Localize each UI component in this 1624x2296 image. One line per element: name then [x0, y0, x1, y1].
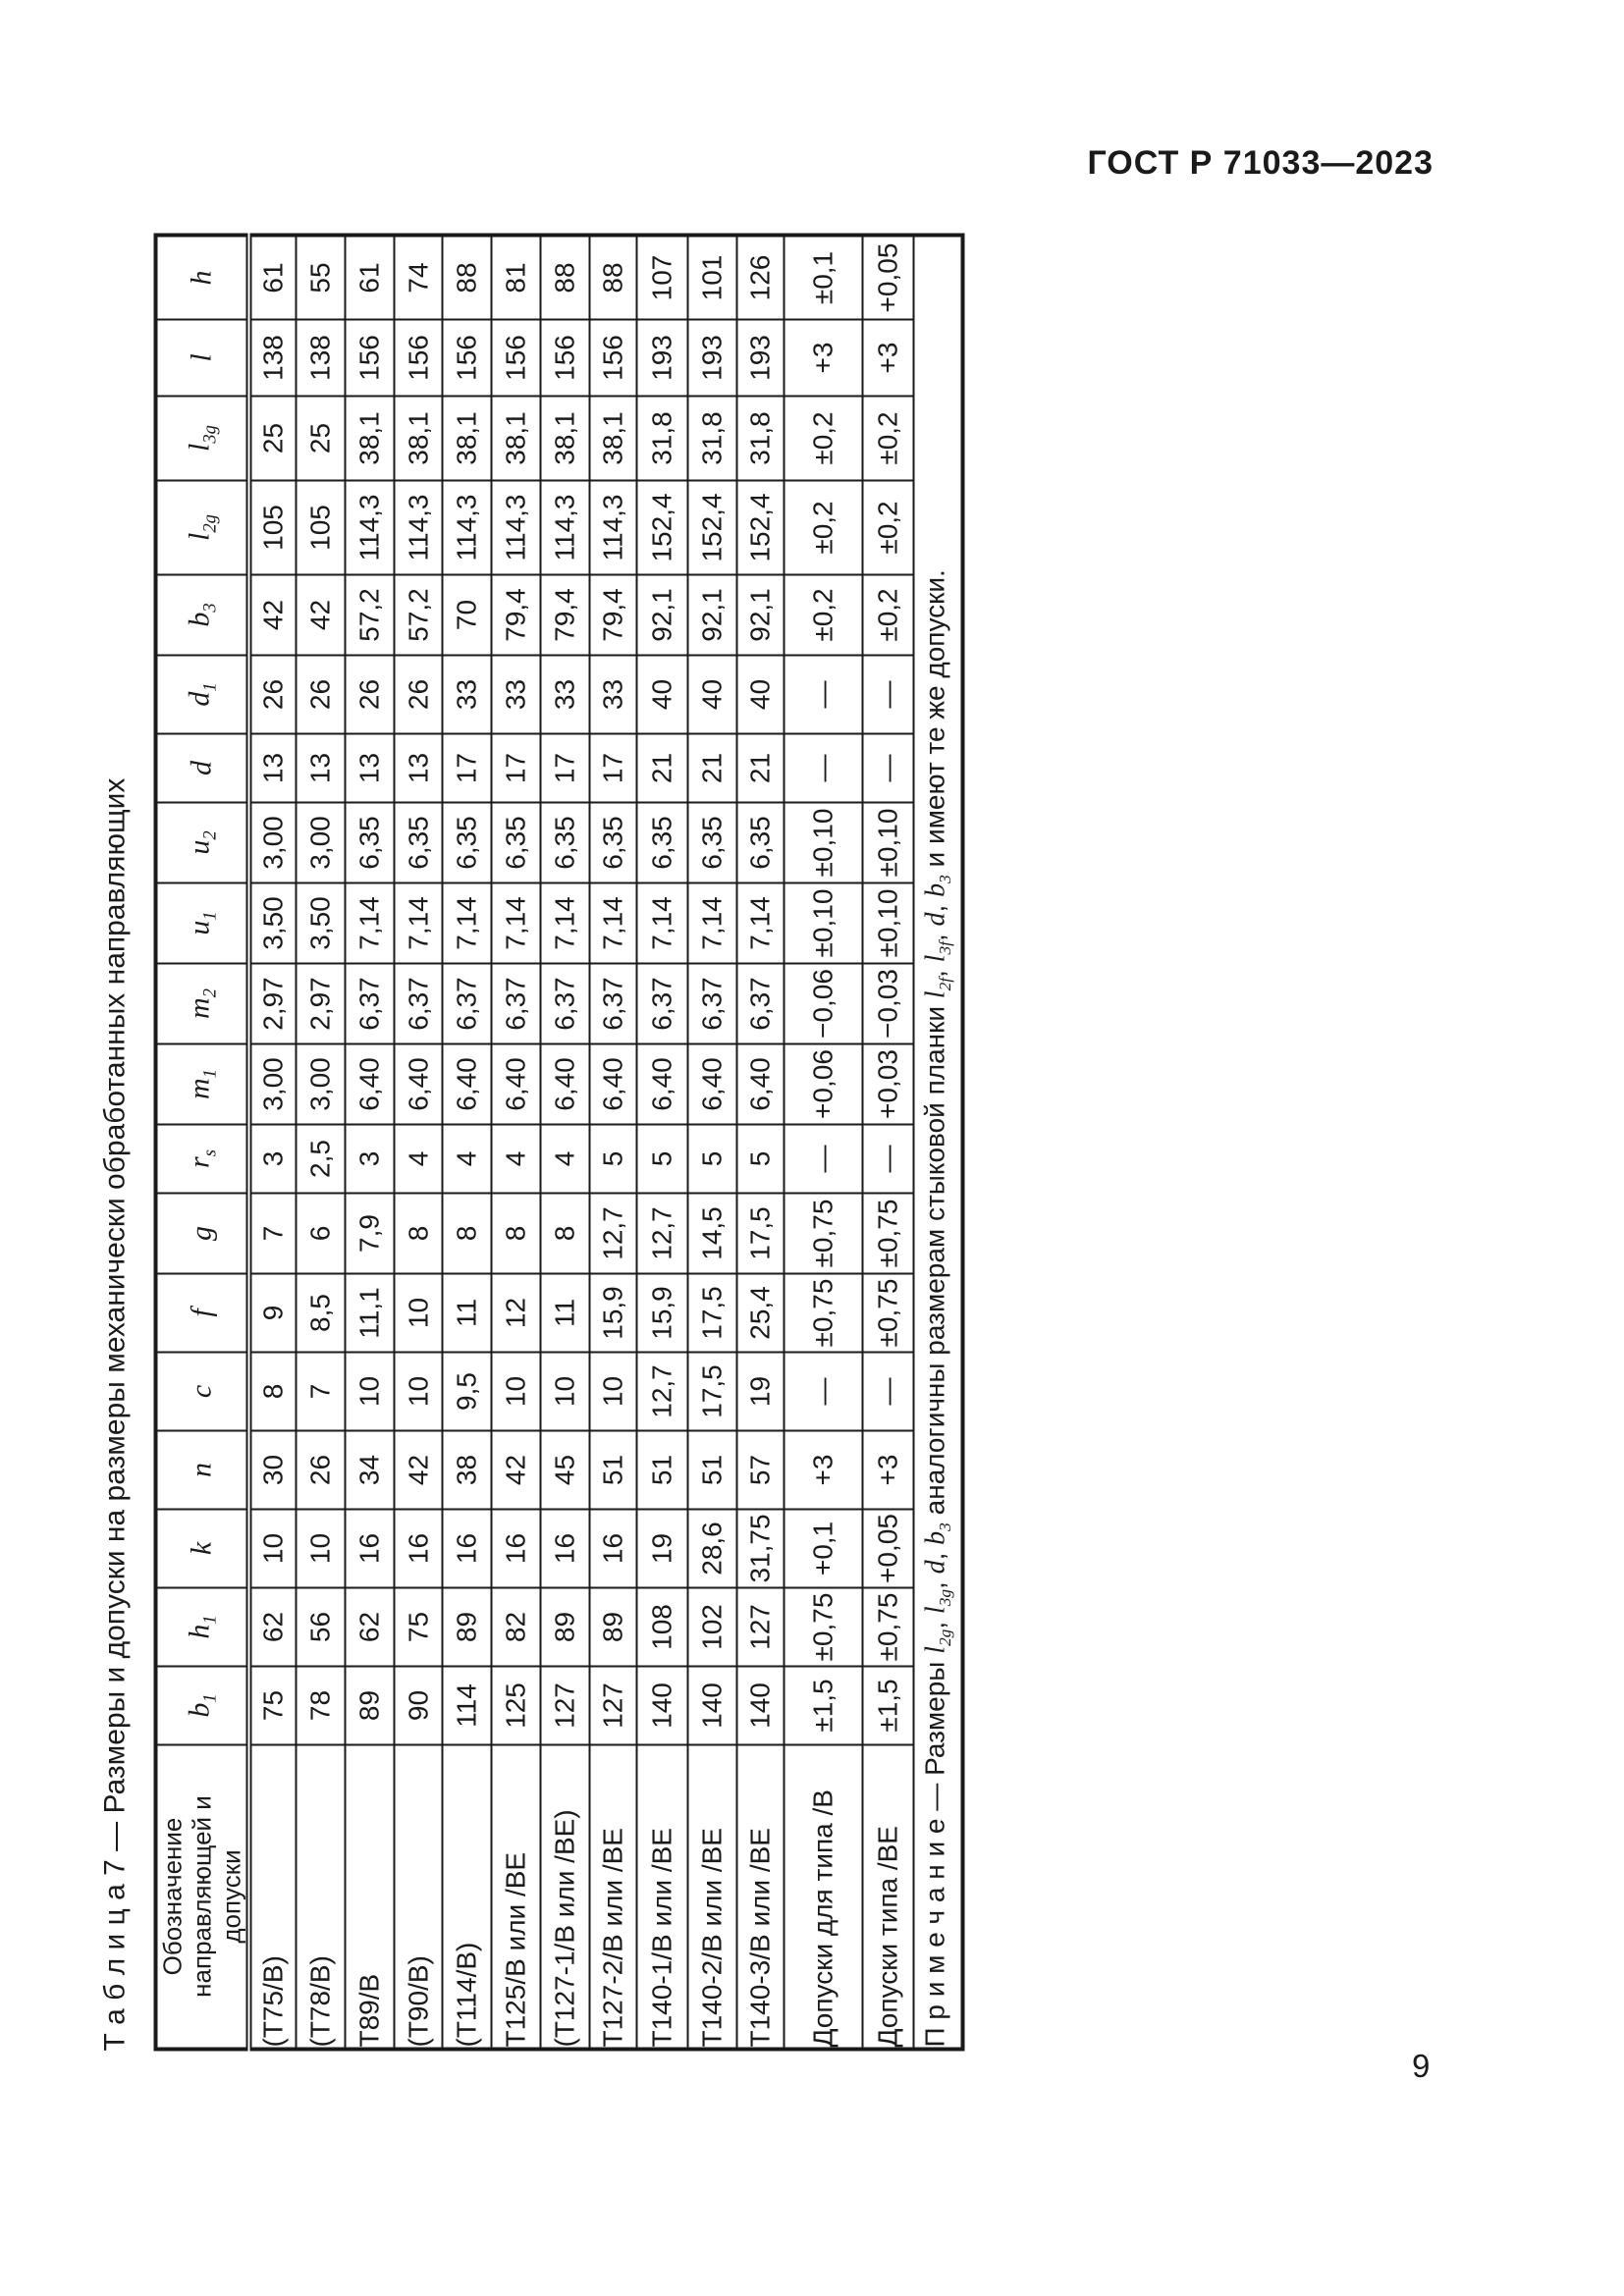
value-cell: 89 [346, 1667, 395, 1745]
value-cell: 16 [395, 1510, 443, 1588]
dimension-header-cell: h [156, 236, 249, 320]
dimension-header-cell: b1 [156, 1667, 249, 1745]
value-cell: 17 [541, 734, 590, 803]
value-cell: 6,35 [395, 803, 443, 883]
value-cell: 92,1 [737, 575, 785, 656]
designation-cell: (Т78/В) [297, 1745, 346, 2050]
value-cell: ±0,75 [785, 1588, 863, 1667]
value-cell: 3,00 [297, 1044, 346, 1125]
value-cell: 10 [590, 1353, 637, 1431]
value-cell: 2,97 [297, 964, 346, 1044]
value-cell: 78 [297, 1667, 346, 1745]
value-cell: 51 [637, 1431, 688, 1510]
value-cell: 57 [737, 1431, 785, 1510]
value-cell: ±0,75 [863, 1194, 914, 1274]
value-cell: ±0,2 [863, 397, 914, 481]
value-cell: +0,05 [863, 1510, 914, 1588]
value-cell: 102 [688, 1588, 737, 1667]
table-row: Т140-2/В или /ВЕ14010228,65117,517,514,5… [688, 236, 737, 2050]
value-cell: 31,8 [688, 397, 737, 481]
value-cell: +3 [863, 320, 914, 397]
value-cell: 79,4 [590, 575, 637, 656]
value-cell: 6,40 [541, 1044, 590, 1125]
value-cell: 82 [492, 1588, 541, 1667]
value-cell: 8 [249, 1353, 297, 1431]
value-cell: 193 [688, 320, 737, 397]
value-cell: 10 [297, 1510, 346, 1588]
value-cell: 38,1 [541, 397, 590, 481]
table-row: Допуски типа /ВЕ±1,5±0,75+0,05+3—±0,75±0… [863, 236, 914, 2050]
value-cell: 31,8 [637, 397, 688, 481]
value-cell: 5 [688, 1125, 737, 1194]
value-cell: 42 [249, 575, 297, 656]
value-cell: 25 [249, 397, 297, 481]
value-cell: 12,7 [637, 1353, 688, 1431]
value-cell: 105 [249, 481, 297, 575]
value-cell: 12,7 [590, 1194, 637, 1274]
value-cell: 6,37 [688, 964, 737, 1044]
value-cell: 7,14 [492, 883, 541, 964]
table-row: (Т75/В)7562103089733,002,973,503,0013264… [249, 236, 297, 2050]
designation-header-cell: Обозначение направляющей и допуски [156, 1745, 249, 2050]
value-cell: 4 [492, 1125, 541, 1194]
value-cell: 17,5 [737, 1194, 785, 1274]
note-row: П р и м е ч а н и е — Размеры l2g, l3g, … [914, 236, 963, 2050]
value-cell: 92,1 [637, 575, 688, 656]
value-cell: 4 [541, 1125, 590, 1194]
value-cell: 7,14 [395, 883, 443, 964]
value-cell: 6,40 [492, 1044, 541, 1125]
value-cell: 140 [737, 1667, 785, 1745]
value-cell: 55 [297, 236, 346, 320]
value-cell: 38,1 [492, 397, 541, 481]
table-row: Т125/В или /ВЕ1258216421012846,406,377,1… [492, 236, 541, 2050]
value-cell: 21 [637, 734, 688, 803]
value-cell: 7,14 [590, 883, 637, 964]
value-cell: 10 [249, 1510, 297, 1588]
value-cell: 156 [492, 320, 541, 397]
value-cell: 7,9 [346, 1194, 395, 1274]
value-cell: 21 [688, 734, 737, 803]
value-cell: ±0,10 [863, 883, 914, 964]
value-cell: −0,06 [785, 964, 863, 1044]
value-cell: 7,14 [541, 883, 590, 964]
value-cell: 70 [443, 575, 492, 656]
table-row: (Т78/В)7856102678,562,53,002,973,503,001… [297, 236, 346, 2050]
value-cell: 114,3 [395, 481, 443, 575]
value-cell: 17 [590, 734, 637, 803]
value-cell: 33 [492, 656, 541, 734]
value-cell: 12,7 [637, 1194, 688, 1274]
value-cell: 61 [249, 236, 297, 320]
dimension-header-cell: c [156, 1353, 249, 1431]
value-cell: 127 [590, 1667, 637, 1745]
value-cell: 2,97 [249, 964, 297, 1044]
value-cell: 6,35 [346, 803, 395, 883]
value-cell: 138 [249, 320, 297, 397]
designation-cell: Допуски для типа /В [785, 1745, 863, 2050]
dimension-header-cell: l [156, 320, 249, 397]
dimension-header-cell: n [156, 1431, 249, 1510]
designation-cell: Допуски типа /ВЕ [863, 1745, 914, 2050]
table-row: Т140-3/В или /ВЕ14012731,75571925,417,55… [737, 236, 785, 2050]
value-cell: 5 [737, 1125, 785, 1194]
dimensions-table: Обозначение направляющей и допускиb1h1kn… [154, 234, 965, 2052]
value-cell: 125 [492, 1667, 541, 1745]
table-row: Т89/В896216341011,17,936,406,377,146,351… [346, 236, 395, 2050]
value-cell: 51 [590, 1431, 637, 1510]
value-cell: 6,35 [637, 803, 688, 883]
value-cell: ±1,5 [785, 1667, 863, 1745]
value-cell: 11 [541, 1274, 590, 1353]
dimension-header-cell: f [156, 1274, 249, 1353]
value-cell: 33 [541, 656, 590, 734]
value-cell: ±0,10 [785, 803, 863, 883]
value-cell: 90 [395, 1667, 443, 1745]
value-cell: 114,3 [346, 481, 395, 575]
value-cell: +0,03 [863, 1044, 914, 1125]
value-cell: 30 [249, 1431, 297, 1510]
value-cell: 6,40 [637, 1044, 688, 1125]
value-cell: +0,05 [863, 236, 914, 320]
dimension-header-cell: l3g [156, 397, 249, 481]
value-cell: 89 [541, 1588, 590, 1667]
designation-cell: Т140-3/В или /ВЕ [737, 1745, 785, 2050]
value-cell: 81 [492, 236, 541, 320]
value-cell: 5 [637, 1125, 688, 1194]
table-row: (Т90/В)907516421010846,406,377,146,35132… [395, 236, 443, 2050]
value-cell: 88 [590, 236, 637, 320]
dimension-header-cell: m2 [156, 964, 249, 1044]
dimension-header-cell: d1 [156, 656, 249, 734]
value-cell: 79,4 [541, 575, 590, 656]
value-cell: 6,35 [443, 803, 492, 883]
value-cell: 156 [590, 320, 637, 397]
value-cell: 6,40 [737, 1044, 785, 1125]
value-cell: 45 [541, 1431, 590, 1510]
value-cell: 17 [492, 734, 541, 803]
table-body: (Т75/В)7562103089733,002,973,503,0013264… [249, 236, 963, 2050]
value-cell: 31,75 [737, 1510, 785, 1588]
value-cell: 3,00 [249, 803, 297, 883]
page-number: 9 [1412, 2048, 1430, 2085]
doc-header: ГОСТ Р 71033—2023 [1087, 144, 1434, 183]
value-cell: 8 [395, 1194, 443, 1274]
dimension-header-cell: m1 [156, 1044, 249, 1125]
value-cell: — [863, 1125, 914, 1194]
value-cell: 9 [249, 1274, 297, 1353]
value-cell: 114,3 [443, 481, 492, 575]
value-cell: 6,37 [637, 964, 688, 1044]
value-cell: 51 [688, 1431, 737, 1510]
value-cell: 26 [346, 656, 395, 734]
value-cell: +3 [785, 320, 863, 397]
value-cell: 8,5 [297, 1274, 346, 1353]
value-cell: ±0,10 [863, 803, 914, 883]
table-row: (Т114/В)1148916389,511846,406,377,146,35… [443, 236, 492, 2050]
value-cell: ±0,2 [863, 575, 914, 656]
value-cell: 62 [249, 1588, 297, 1667]
value-cell: 114,3 [492, 481, 541, 575]
value-cell: 11 [443, 1274, 492, 1353]
value-cell: 17,5 [688, 1353, 737, 1431]
value-cell: 40 [688, 656, 737, 734]
value-cell: 15,9 [637, 1274, 688, 1353]
value-cell: 17,5 [688, 1274, 737, 1353]
value-cell: 7 [297, 1353, 346, 1431]
value-cell: 17 [443, 734, 492, 803]
value-cell: 57,2 [346, 575, 395, 656]
value-cell: — [863, 1353, 914, 1431]
value-cell: 6,37 [346, 964, 395, 1044]
value-cell: 6,37 [395, 964, 443, 1044]
value-cell: 2,5 [297, 1125, 346, 1194]
value-cell: 193 [737, 320, 785, 397]
value-cell: 3,00 [249, 1044, 297, 1125]
value-cell: 15,9 [590, 1274, 637, 1353]
value-cell: 25 [297, 397, 346, 481]
note-cell: П р и м е ч а н и е — Размеры l2g, l3g, … [914, 236, 963, 2050]
value-cell: +0,06 [785, 1044, 863, 1125]
value-cell: 61 [346, 236, 395, 320]
value-cell: 101 [688, 236, 737, 320]
value-cell: 57,2 [395, 575, 443, 656]
dimension-header-cell: k [156, 1510, 249, 1588]
dimension-header-cell: u2 [156, 803, 249, 883]
value-cell: 79,4 [492, 575, 541, 656]
value-cell: 16 [443, 1510, 492, 1588]
value-cell: 19 [637, 1510, 688, 1588]
value-cell: 6,37 [443, 964, 492, 1044]
value-cell: 7,14 [637, 883, 688, 964]
value-cell: 127 [541, 1667, 590, 1745]
table-row: Т140-1/В или /ВЕ140108195112,715,912,756… [637, 236, 688, 2050]
value-cell: 7,14 [443, 883, 492, 964]
value-cell: 19 [737, 1353, 785, 1431]
value-cell: ±0,2 [785, 575, 863, 656]
value-cell: 21 [737, 734, 785, 803]
value-cell: +3 [785, 1431, 863, 1510]
table-title: Т а б л и ц а 7 — Размеры и допуски на р… [97, 231, 135, 2052]
value-cell: 5 [590, 1125, 637, 1194]
dimension-header-cell: u1 [156, 883, 249, 964]
value-cell: 14,5 [688, 1194, 737, 1274]
dimension-header-cell: rs [156, 1125, 249, 1194]
value-cell: 6,35 [737, 803, 785, 883]
value-cell: 40 [737, 656, 785, 734]
value-cell: 152,4 [688, 481, 737, 575]
value-cell: 31,8 [737, 397, 785, 481]
value-cell: 42 [297, 575, 346, 656]
value-cell: 8 [492, 1194, 541, 1274]
value-cell: 7,14 [688, 883, 737, 964]
value-cell: 8 [443, 1194, 492, 1274]
value-cell: 92,1 [688, 575, 737, 656]
value-cell: 88 [541, 236, 590, 320]
table-row: Допуски для типа /В±1,5±0,75+0,1+3—±0,75… [785, 236, 863, 2050]
value-cell: 16 [590, 1510, 637, 1588]
rotated-table-container: Т а б л и ц а 7 — Размеры и допуски на р… [97, 231, 961, 2052]
value-cell: 193 [637, 320, 688, 397]
value-cell: — [785, 656, 863, 734]
value-cell: 140 [637, 1667, 688, 1745]
value-cell: 3 [249, 1125, 297, 1194]
value-cell: 6,35 [590, 803, 637, 883]
designation-cell: Т140-1/В или /ВЕ [637, 1745, 688, 2050]
value-cell: ±0,2 [785, 481, 863, 575]
value-cell: 6,40 [590, 1044, 637, 1125]
value-cell: 6,35 [688, 803, 737, 883]
value-cell: 16 [346, 1510, 395, 1588]
value-cell: 38 [443, 1431, 492, 1510]
value-cell: 10 [346, 1353, 395, 1431]
value-cell: 26 [249, 656, 297, 734]
value-cell: 6,37 [737, 964, 785, 1044]
value-cell: 6,35 [492, 803, 541, 883]
value-cell: 33 [590, 656, 637, 734]
value-cell: 6,40 [688, 1044, 737, 1125]
value-cell: 126 [737, 236, 785, 320]
value-cell: ±0,75 [863, 1274, 914, 1353]
value-cell: 6,37 [590, 964, 637, 1044]
value-cell: 6,35 [541, 803, 590, 883]
value-cell: 75 [249, 1667, 297, 1745]
value-cell: 13 [346, 734, 395, 803]
value-cell: 6,40 [395, 1044, 443, 1125]
dimension-header-cell: b3 [156, 575, 249, 656]
value-cell: +0,1 [785, 1510, 863, 1588]
value-cell: 62 [346, 1588, 395, 1667]
value-cell: 6 [297, 1194, 346, 1274]
designation-cell: (Т75/В) [249, 1745, 297, 2050]
value-cell: 38,1 [590, 397, 637, 481]
value-cell: 6,40 [346, 1044, 395, 1125]
value-cell: ±0,1 [785, 236, 863, 320]
value-cell: 13 [249, 734, 297, 803]
value-cell: ±0,2 [863, 481, 914, 575]
value-cell: ±0,2 [785, 397, 863, 481]
designation-cell: Т127-2/В или /ВЕ [590, 1745, 637, 2050]
value-cell: 3,50 [249, 883, 297, 964]
value-cell: 10 [395, 1274, 443, 1353]
value-cell: 4 [443, 1125, 492, 1194]
value-cell: 107 [637, 236, 688, 320]
value-cell: ±0,75 [785, 1194, 863, 1274]
value-cell: 33 [443, 656, 492, 734]
value-cell: ±0,75 [863, 1588, 914, 1667]
value-cell: 114,3 [541, 481, 590, 575]
value-cell: 3,50 [297, 883, 346, 964]
value-cell: 156 [395, 320, 443, 397]
value-cell: 42 [492, 1431, 541, 1510]
value-cell: 42 [395, 1431, 443, 1510]
value-cell: 88 [443, 236, 492, 320]
value-cell: 26 [395, 656, 443, 734]
header-row: Обозначение направляющей и допускиb1h1kn… [156, 236, 249, 2050]
designation-cell: Т89/В [346, 1745, 395, 2050]
value-cell: 152,4 [637, 481, 688, 575]
value-cell: 138 [297, 320, 346, 397]
value-cell: — [785, 1353, 863, 1431]
value-cell: — [863, 734, 914, 803]
value-cell: 9,5 [443, 1353, 492, 1431]
value-cell: 26 [297, 656, 346, 734]
value-cell: 40 [637, 656, 688, 734]
value-cell: 6,37 [541, 964, 590, 1044]
value-cell: 105 [297, 481, 346, 575]
value-cell: 38,1 [443, 397, 492, 481]
value-cell: 74 [395, 236, 443, 320]
designation-cell: (Т127-1/В или /ВЕ) [541, 1745, 590, 2050]
value-cell: 10 [541, 1353, 590, 1431]
value-cell: 156 [443, 320, 492, 397]
value-cell: 152,4 [737, 481, 785, 575]
value-cell: — [785, 1125, 863, 1194]
designation-cell: (Т90/В) [395, 1745, 443, 2050]
table-row: Т127-2/В или /ВЕ1278916511015,912,756,40… [590, 236, 637, 2050]
value-cell: 7,14 [737, 883, 785, 964]
value-cell: — [785, 734, 863, 803]
value-cell: 38,1 [346, 397, 395, 481]
value-cell: 11,1 [346, 1274, 395, 1353]
value-cell: 10 [492, 1353, 541, 1431]
value-cell: 25,4 [737, 1274, 785, 1353]
value-cell: 89 [443, 1588, 492, 1667]
table-row: (Т127-1/В или /ВЕ)1278916451011846,406,3… [541, 236, 590, 2050]
table-head: Обозначение направляющей и допускиb1h1kn… [156, 236, 249, 2050]
dimension-header-cell: d [156, 734, 249, 803]
value-cell: 6,40 [443, 1044, 492, 1125]
value-cell: 34 [346, 1431, 395, 1510]
dimension-header-cell: h1 [156, 1588, 249, 1667]
value-cell: 127 [737, 1588, 785, 1667]
value-cell: 75 [395, 1588, 443, 1667]
value-cell: 108 [637, 1588, 688, 1667]
value-cell: 114 [443, 1667, 492, 1745]
value-cell: ±1,5 [863, 1667, 914, 1745]
value-cell: 26 [297, 1431, 346, 1510]
value-cell: 8 [541, 1194, 590, 1274]
value-cell: 4 [395, 1125, 443, 1194]
value-cell: 7,14 [346, 883, 395, 964]
value-cell: −0,03 [863, 964, 914, 1044]
value-cell: 156 [541, 320, 590, 397]
value-cell: ±0,10 [785, 883, 863, 964]
value-cell: 56 [297, 1588, 346, 1667]
value-cell: +3 [863, 1431, 914, 1510]
value-cell: 28,6 [688, 1510, 737, 1588]
value-cell: 38,1 [395, 397, 443, 481]
designation-cell: Т125/В или /ВЕ [492, 1745, 541, 2050]
value-cell: 89 [590, 1588, 637, 1667]
value-cell: 12 [492, 1274, 541, 1353]
value-cell: 6,37 [492, 964, 541, 1044]
value-cell: 140 [688, 1667, 737, 1745]
value-cell: 16 [541, 1510, 590, 1588]
value-cell: 3,00 [297, 803, 346, 883]
value-cell: 114,3 [590, 481, 637, 575]
designation-cell: Т140-2/В или /ВЕ [688, 1745, 737, 2050]
dimension-header-cell: g [156, 1194, 249, 1274]
value-cell: 13 [395, 734, 443, 803]
value-cell: 13 [297, 734, 346, 803]
value-cell: 7 [249, 1194, 297, 1274]
value-cell: ±0,75 [785, 1274, 863, 1353]
value-cell: 156 [346, 320, 395, 397]
dimension-header-cell: l2g [156, 481, 249, 575]
value-cell: 16 [492, 1510, 541, 1588]
value-cell: 10 [395, 1353, 443, 1431]
